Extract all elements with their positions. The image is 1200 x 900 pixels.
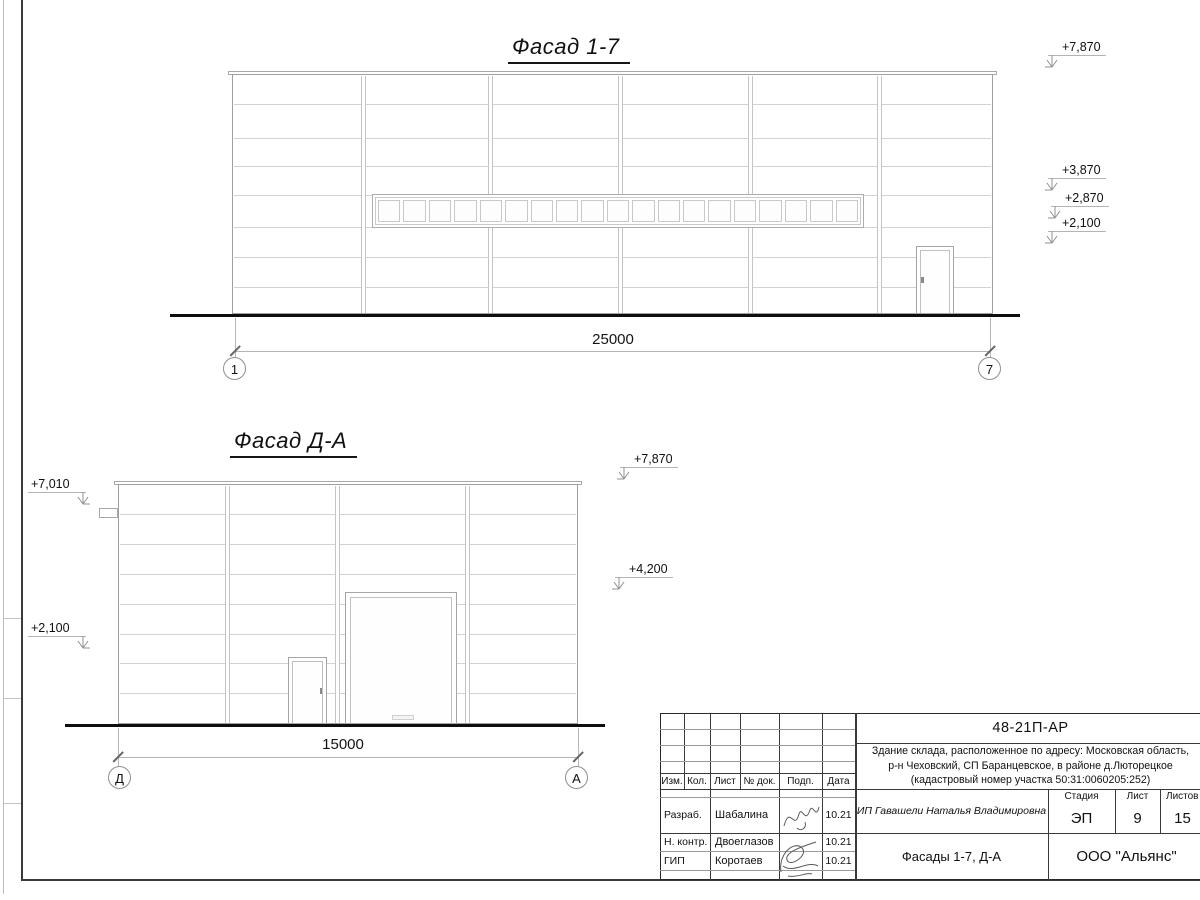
door-handle [320,688,323,694]
level-mark-icon [617,466,631,483]
level-mark-icon [612,576,626,593]
elevation-mark: +7,870 [1048,40,1106,74]
col-data: Дата [822,773,855,789]
window-pane [810,200,832,222]
window-pane [658,200,680,222]
company-name: ООО "Альянс" [1048,833,1200,880]
sheets-label: Листов [1160,789,1200,803]
axis-bubble-1: 1 [223,357,246,380]
window-pane [836,200,858,222]
facade-top-ground-line [170,314,1020,317]
date-razrab: 10.21 [823,797,854,833]
date-nkontr: 10.21 [823,833,854,851]
facade-top-window-band-inner [375,197,861,225]
margin-divider [4,618,22,619]
facade-side-panel-joint [120,544,576,545]
project-description-line: (кадастровый номер участка 50:31:0060205… [856,773,1200,788]
extension-line [118,728,119,768]
dimension-text: 25000 [558,331,668,348]
stage-label: Стадия [1048,789,1115,803]
window-pane [480,200,502,222]
drawing-sheet: { "facade_top": { "title": "Фасад 1-7", … [0,0,1200,900]
frame-left-border [21,0,23,881]
facade-side-column-line [465,486,470,723]
facade-side-title: Фасад Д-А [230,428,357,458]
sheet-edge-line [3,0,4,894]
window-pane [505,200,527,222]
sheet-count: 15 [1160,803,1200,833]
level-mark-icon [1045,230,1059,247]
window-pane [785,200,807,222]
level-mark-icon [76,635,90,652]
project-description-line: р-н Чеховский, СП Баранцевское, в районе… [856,759,1200,774]
sheet-number: 9 [1115,803,1160,833]
name-gip: Коротаев [712,851,778,870]
window-pane [607,200,629,222]
facade-top-door [916,246,954,314]
facade-side-panel-joint [120,574,576,575]
role-razrab: Разраб. [661,797,709,833]
signature-razrab [781,798,821,834]
window-pane [632,200,654,222]
facade-side-ground-line [65,724,605,727]
facade-top-title: Фасад 1-7 [508,34,630,64]
window-pane [403,200,425,222]
facade-side-panel-joint [120,514,576,515]
title-block-line [660,745,855,746]
date-gip: 10.21 [823,851,854,870]
extension-line [578,728,579,768]
elevation-mark: +7,870 [620,452,678,486]
col-kol: Кол. [684,773,710,789]
axis-bubble-d: Д [108,766,131,789]
facade-top-window-band [372,194,864,228]
window-pane [429,200,451,222]
door-handle [921,277,924,283]
window-pane [378,200,400,222]
axis-bubble-7: 7 [978,357,1001,380]
window-pane [759,200,781,222]
facade-side-door-leaf [292,661,323,723]
name-razrab: Шабалина [712,797,778,833]
facade-side-gate [345,592,457,724]
window-pane [581,200,603,222]
axis-bubble-a: А [565,766,588,789]
elevation-mark: +7,010 [28,477,86,511]
facade-side-column-line [225,486,230,723]
margin-divider [4,698,22,699]
elevation-mark: +4,200 [615,562,673,596]
facade-side-gate-leaf [350,597,452,723]
level-mark-icon [76,491,90,508]
window-pane [531,200,553,222]
col-list: Лист [710,773,740,789]
doc-number: 48-21П-АР [856,713,1200,743]
elevation-mark: +2,100 [1048,216,1106,250]
window-pane [683,200,705,222]
title-block-line [660,870,855,871]
window-pane [556,200,578,222]
col-podp: Подп. [779,773,822,789]
level-mark-icon [1045,54,1059,71]
facade-side-door [288,657,327,724]
client-name: ИП Гавашели Наталья Владимировна [856,789,1047,833]
project-description-line: Здание склада, расположенное по адресу: … [856,744,1200,759]
window-pane [734,200,756,222]
sheet-label: Лист [1115,789,1160,803]
facade-top-door-leaf [920,250,950,313]
window-pane [708,200,730,222]
margin-divider [4,803,22,804]
title-block-line [660,761,855,762]
dimension-text: 15000 [288,736,398,753]
role-nkontr: Н. контр. [661,833,709,851]
window-pane [454,200,476,222]
facade-top-column-line [361,76,366,313]
col-ndok: № док. [740,773,779,789]
gate-threshold [392,715,414,720]
facade-side-column-line [335,486,340,723]
project-description: Здание склада, расположенное по адресу: … [856,744,1200,789]
title-block-line [660,729,855,730]
dimension-line [118,757,578,758]
signature-gip [776,834,822,878]
col-izm: Изм. [660,773,684,789]
stage-value: ЭП [1048,803,1115,833]
facade-side-gutter-outlet [99,508,118,518]
facade-top-column-line [877,76,882,313]
role-gip: ГИП [661,851,709,870]
dimension-line [235,351,990,352]
elevation-mark: +2,100 [28,621,86,655]
sheet-title: Фасады 1-7, Д-А [856,833,1047,880]
name-nkontr: Двоеглазов [712,833,778,851]
